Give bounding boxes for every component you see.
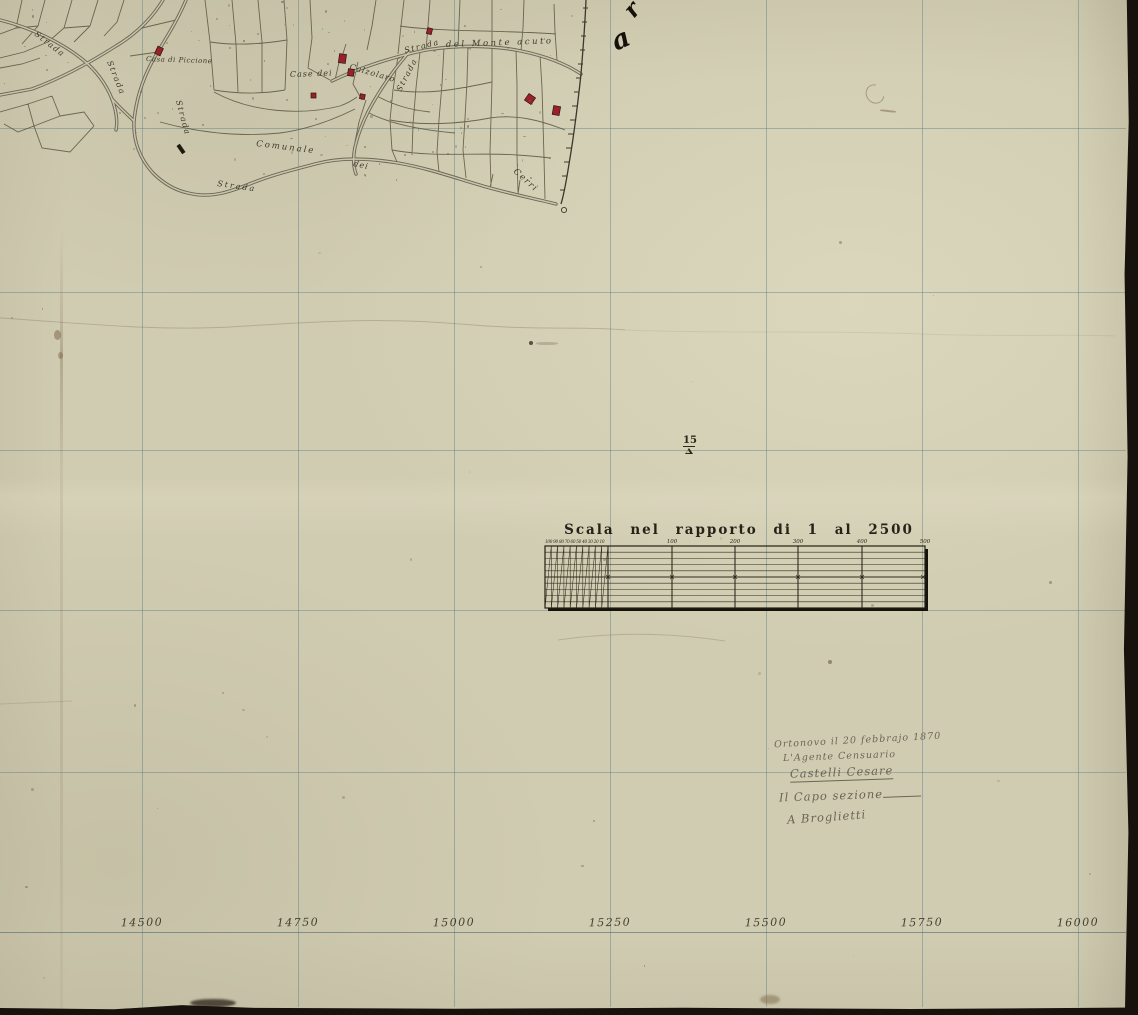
large-cursive-letter: r: [619, 0, 644, 22]
grid-line-vertical: [1078, 0, 1079, 1007]
stain-smudge: [760, 995, 780, 1004]
scale-division-label: 200: [729, 539, 741, 545]
triangle-icon: [685, 448, 693, 454]
coordinate-label: 15000: [433, 916, 476, 930]
handwritten-rule: [883, 788, 921, 798]
paper-speck: [222, 692, 224, 694]
grid-line-horizontal: [0, 932, 1126, 933]
paper-speck: [691, 381, 693, 383]
paper-speck: [1049, 581, 1052, 584]
paper-speck: [997, 780, 999, 782]
scan-edge-right: [1122, 0, 1138, 1015]
road-label: Cerri: [511, 167, 540, 194]
paper-speck: [758, 672, 761, 675]
paper-speck: [1089, 873, 1091, 875]
paper-speck: [266, 736, 267, 737]
scale-bar-title: Scala nel rapporto di 1 al 2500: [564, 522, 914, 538]
scale-division-label: 400: [856, 539, 868, 545]
handwritten-place-date: Ortonovo il 20 febbrajo 1870: [774, 731, 942, 751]
survey-station-number: 15: [683, 435, 695, 447]
scanned-cadastral-map: Strada Strada Strada Strada Strada del M…: [0, 0, 1138, 1015]
grid-line-vertical: [610, 0, 611, 1007]
black-building: [176, 144, 185, 154]
paper-speck: [768, 748, 769, 749]
coordinate-label: 14500: [121, 916, 164, 930]
scale-division-label: 100: [667, 539, 678, 545]
paper-speck: [839, 241, 842, 244]
handwritten-signature: Castelli Cesare: [790, 763, 894, 783]
paper-speck: [933, 295, 935, 297]
paper-speck: [42, 308, 44, 310]
road-label: Strada: [174, 99, 192, 136]
pencil-mark: [862, 81, 888, 108]
stain-spot: [828, 660, 832, 664]
coordinate-label: 16000: [1057, 916, 1100, 930]
pencil-dash: [880, 109, 896, 113]
paper-speck: [31, 788, 33, 790]
grid-line-horizontal: [0, 450, 1126, 451]
handwritten-role: L'Agente Censuario: [783, 749, 896, 764]
paper-speck: [43, 977, 45, 979]
paper-speck: [410, 558, 412, 560]
handwritten-signature: A Broglietti: [787, 807, 867, 826]
survey-station-marker: 15: [679, 435, 699, 454]
paper-crease: [60, 228, 63, 1015]
stain-spot: [54, 330, 61, 340]
road-label: Comunale: [256, 139, 316, 156]
grid-line-vertical: [766, 0, 767, 1007]
ink-spot: [529, 341, 533, 345]
large-cursive-letter: a: [607, 24, 634, 56]
paper-speck: [644, 965, 646, 967]
coordinate-label: 15750: [901, 916, 944, 930]
paper-speck: [593, 820, 594, 821]
stain-spot: [58, 352, 63, 359]
paper-speck: [25, 886, 27, 888]
coordinate-label: 15500: [745, 916, 788, 930]
grid-line-vertical: [922, 0, 923, 1007]
paper-speck: [242, 709, 244, 711]
grid-line-horizontal: [0, 772, 1126, 773]
smudge: [536, 342, 558, 345]
coordinate-label: 15250: [589, 916, 632, 930]
road-label: del Monte acuto: [446, 36, 554, 50]
parcel-map: Strada Strada Strada Strada Strada del M…: [0, 0, 600, 225]
paper-speck: [11, 317, 13, 319]
handwritten-role: Il Capo sezione: [779, 786, 921, 805]
paper-speck: [318, 252, 321, 255]
place-label: Case dei: [290, 69, 333, 79]
scale-division-label: 500: [920, 539, 931, 545]
handwritten-role-text: Il Capo sezione: [779, 787, 883, 805]
paper-speck: [853, 955, 854, 956]
scale-fine-labels: 100 90 80 70 60 50 40 30 20 10: [545, 539, 605, 544]
scale-bar: Scala nel rapporto di 1 al 2500 100 90 8…: [543, 516, 935, 624]
scale-division-label: 300: [793, 539, 804, 545]
grid-line-horizontal: [0, 292, 1126, 293]
paper-speck: [469, 471, 471, 473]
place-label: Casa di Piccione: [146, 55, 213, 65]
paper-speck: [157, 808, 159, 810]
coordinate-label: 14750: [277, 916, 320, 930]
scan-edge-bottom: [0, 1003, 1138, 1015]
paper-speck: [581, 865, 584, 868]
paper-speck: [134, 704, 137, 707]
paper-speck: [480, 266, 482, 268]
road-label: Strada: [395, 57, 419, 93]
paper-speck: [342, 796, 345, 799]
